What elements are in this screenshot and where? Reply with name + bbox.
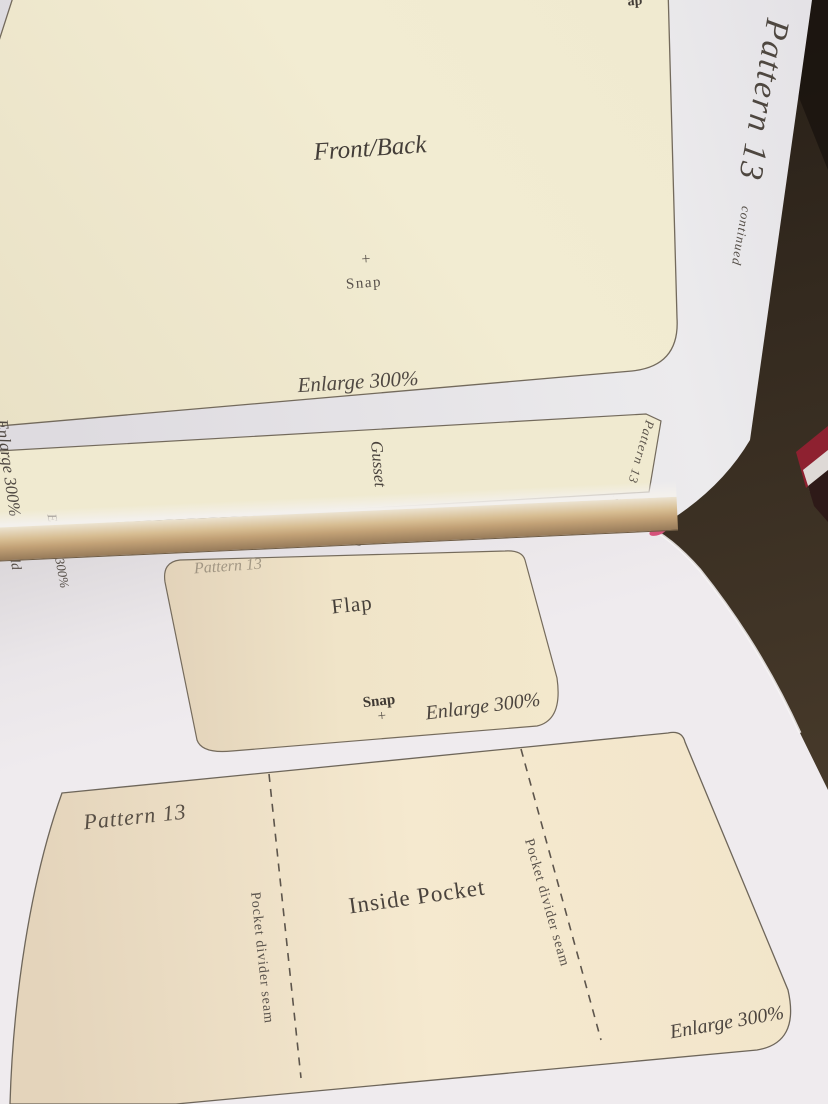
front-back-piece <box>0 0 677 428</box>
photo-open-pattern-book: Pattern 13 continued ap Front/Back + Sna… <box>0 0 828 1104</box>
gusset-label: Gusset <box>366 440 390 488</box>
flap-snap-cross-marker: + <box>377 708 387 726</box>
flap-label: Flap <box>330 590 374 619</box>
front-back-snap-cross-marker: + <box>361 251 371 270</box>
inside-pocket-piece <box>10 732 791 1104</box>
flap-piece <box>165 551 559 752</box>
front-back-snap-label: Snap <box>345 274 382 293</box>
edge-label-fragment: ap <box>627 0 643 11</box>
